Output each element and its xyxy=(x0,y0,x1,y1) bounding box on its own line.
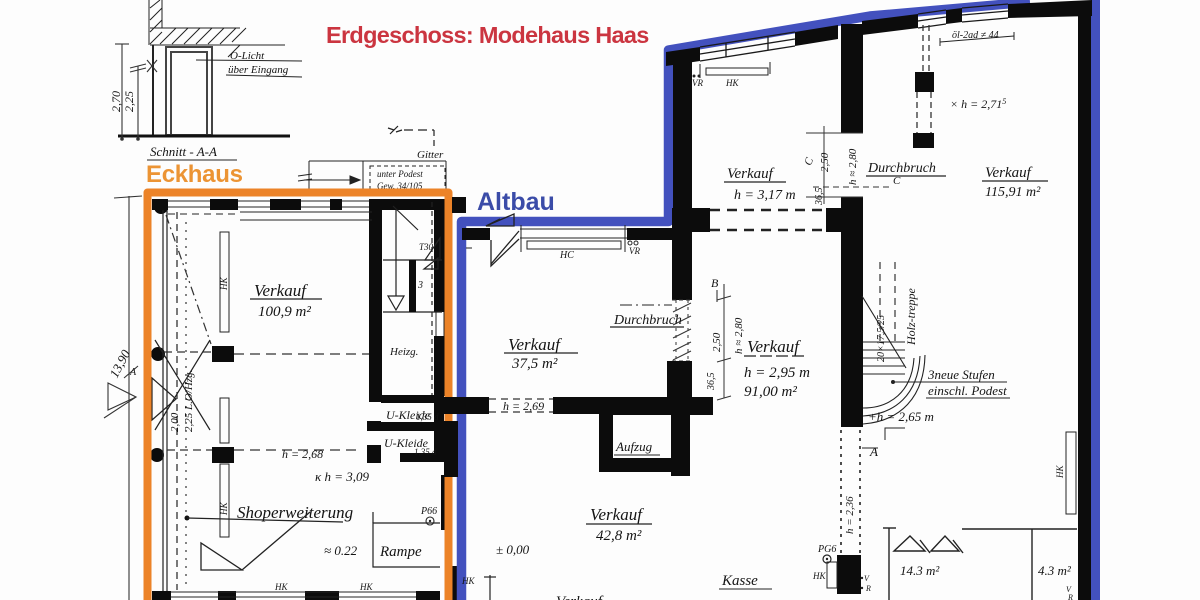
svg-text:P66: P66 xyxy=(420,506,437,517)
svg-text:T30: T30 xyxy=(419,242,434,252)
svg-text:Heizg.: Heizg. xyxy=(389,346,418,358)
svg-text:Kasse: Kasse xyxy=(721,573,758,589)
svg-text:über Eingang: über Eingang xyxy=(228,64,289,76)
svg-text:VR: VR xyxy=(692,78,703,88)
svg-text:36,5: 36,5 xyxy=(706,373,717,392)
svg-text:B: B xyxy=(711,276,719,290)
svg-text:HK: HK xyxy=(725,78,739,88)
svg-text:Durchbruch: Durchbruch xyxy=(867,161,936,176)
svg-text:HC: HC xyxy=(559,250,574,261)
svg-text:Holz-treppe: Holz-treppe xyxy=(904,287,918,346)
svg-text:HK: HK xyxy=(219,277,229,291)
svg-text:Verkauf: Verkauf xyxy=(254,281,308,300)
svg-text:Durchbruch: Durchbruch xyxy=(613,313,682,328)
svg-text:37,5 m²: 37,5 m² xyxy=(511,356,558,372)
svg-text:h ≈ 2,80: h ≈ 2,80 xyxy=(733,317,745,354)
svg-text:Rampe: Rampe xyxy=(379,544,422,560)
svg-text:HK: HK xyxy=(461,576,475,586)
svg-text:h ≈ 2,80: h ≈ 2,80 xyxy=(847,148,859,185)
svg-text:91,00 m²: 91,00 m² xyxy=(744,384,797,400)
svg-text:2,50: 2,50 xyxy=(711,332,723,352)
svg-text:≈ 0.22: ≈ 0.22 xyxy=(324,543,358,558)
svg-text:36,5: 36,5 xyxy=(814,188,825,207)
svg-text:HK: HK xyxy=(812,571,826,581)
svg-text:Verkauf: Verkauf xyxy=(727,166,775,182)
svg-text:einschl. Podest: einschl. Podest xyxy=(928,383,1007,398)
svg-text:h = 2,68: h = 2,68 xyxy=(282,447,323,461)
svg-text:Erdgeschoss: Modehaus Haas: Erdgeschoss: Modehaus Haas xyxy=(326,22,649,48)
svg-text:Verkauf: Verkauf xyxy=(590,505,644,524)
svg-text:h = 2,95 m: h = 2,95 m xyxy=(744,365,810,381)
svg-text:Gitter: Gitter xyxy=(417,149,444,161)
svg-text:κ h = 3,09: κ h = 3,09 xyxy=(315,469,370,484)
svg-text:2,70: 2,70 xyxy=(109,91,123,112)
svg-text:42,8 m²: 42,8 m² xyxy=(596,528,642,544)
svg-text:unter Podest: unter Podest xyxy=(377,169,423,179)
svg-text:2,00: 2,00 xyxy=(169,412,181,432)
svg-text:VR: VR xyxy=(629,246,640,256)
svg-text:HK: HK xyxy=(219,502,229,516)
svg-text:Altbau: Altbau xyxy=(477,188,555,216)
svg-text:Schnitt - A-A: Schnitt - A-A xyxy=(150,144,217,159)
svg-text:R: R xyxy=(865,584,871,593)
svg-text:C: C xyxy=(893,175,901,187)
svg-text:Verkauf: Verkauf xyxy=(747,337,801,356)
svg-text:× h = 2,715: × h = 2,715 xyxy=(950,97,1006,111)
svg-text:2,25 L.O/Hzg.: 2,25 L.O/Hzg. xyxy=(183,370,195,432)
svg-text:14.3 m²: 14.3 m² xyxy=(900,563,940,578)
svg-text:Verkauf: Verkauf xyxy=(556,594,604,600)
svg-text:Verkauf: Verkauf xyxy=(508,335,562,354)
svg-text:3neue Stufen: 3neue Stufen xyxy=(927,367,995,382)
svg-text:HK: HK xyxy=(359,582,373,592)
svg-text:+h = 2,65 m: +h = 2,65 m xyxy=(868,409,934,424)
svg-text:PG6: PG6 xyxy=(817,544,836,555)
svg-text:öl-2ad ≠ 44: öl-2ad ≠ 44 xyxy=(952,30,999,41)
svg-text:Aufzug: Aufzug xyxy=(615,439,653,454)
svg-text:100,9 m²: 100,9 m² xyxy=(258,304,311,320)
svg-text:2,25: 2,25 xyxy=(122,91,136,112)
svg-text:A: A xyxy=(129,367,137,378)
svg-text:h = 2,69: h = 2,69 xyxy=(503,399,544,413)
svg-text:3: 3 xyxy=(417,280,423,291)
svg-text:Verkauf: Verkauf xyxy=(985,165,1033,181)
svg-text:HK: HK xyxy=(274,582,288,592)
svg-text:A: A xyxy=(869,444,878,459)
svg-text:4.3 m²: 4.3 m² xyxy=(1038,563,1072,578)
svg-text:115,91 m²: 115,91 m² xyxy=(985,185,1041,200)
svg-text:h = 2,36: h = 2,36 xyxy=(844,496,856,534)
svg-text:20×17,5/25: 20×17,5/25 xyxy=(876,315,887,362)
svg-text:HK: HK xyxy=(1055,465,1065,479)
svg-text:R: R xyxy=(1067,593,1073,600)
svg-text:± 0,00: ± 0,00 xyxy=(496,542,530,557)
svg-text:2,50: 2,50 xyxy=(819,152,831,172)
svg-text:1,35 d: 1,35 d xyxy=(416,412,439,422)
svg-text:Eckhaus: Eckhaus xyxy=(146,161,243,188)
svg-text:1,35 d: 1,35 d xyxy=(414,447,437,457)
svg-text:h = 3,17 m: h = 3,17 m xyxy=(734,188,796,203)
